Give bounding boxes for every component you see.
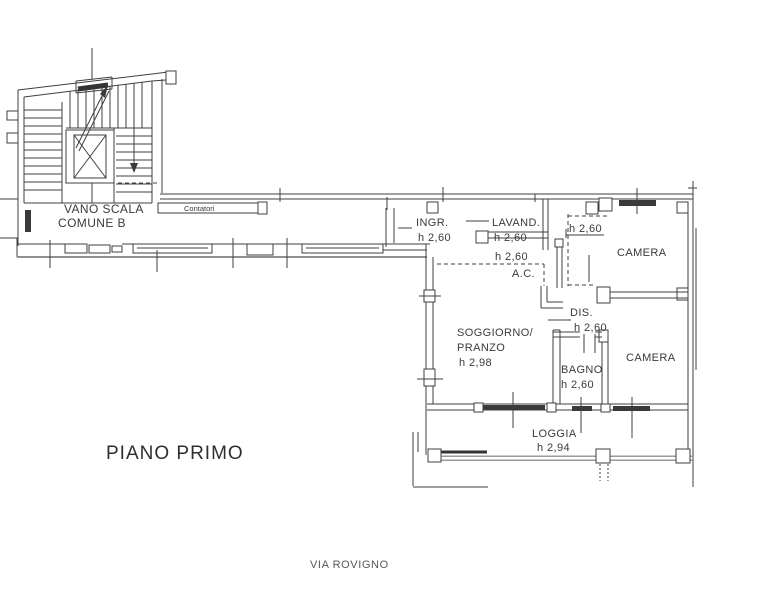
room-label-disimpegno: DIS.: [570, 307, 593, 319]
room-label-lavanderia: LAVAND.: [492, 217, 540, 229]
room-label-ingresso: INGR.: [416, 217, 449, 229]
loggia-railing: [413, 432, 694, 487]
room-label-bagno: BAGNO: [561, 364, 603, 376]
room-height-ingresso: h 2,60: [418, 232, 451, 244]
room-label-camera-nord: CAMERA: [617, 247, 667, 259]
room-height-loggia: h 2,94: [537, 442, 570, 454]
stairwell-door-mark: [25, 210, 31, 232]
room-label-soggiorno-line2: PRANZO: [457, 342, 505, 354]
floor-plan-page: VANO SCALA COMUNE B Contatori INGR. h 2,…: [0, 0, 768, 601]
room-height-vestibolo: h 2,60: [569, 223, 602, 235]
room-height-soggiorno: h 2,98: [459, 357, 492, 369]
floor-plan-canvas: VANO SCALA COMUNE B Contatori INGR. h 2,…: [0, 0, 768, 601]
room-label-camera-sud: CAMERA: [626, 352, 676, 364]
stairwell-label-line2: COMUNE B: [58, 216, 126, 230]
room-label-soggiorno-line1: SOGGIORNO/: [457, 327, 534, 339]
room-height-bagno: h 2,60: [561, 379, 594, 391]
stairwell-label-line1: VANO SCALA: [64, 202, 144, 216]
meters-label: Contatori: [184, 204, 215, 213]
street-label: VIA ROVIGNO: [310, 559, 389, 571]
room-label-loggia: LOGGIA: [532, 428, 577, 440]
room-height-armadio: h 2,60: [495, 251, 528, 263]
room-label-armadio: A.C.: [512, 268, 535, 280]
room-height-disimpegno: h 2,60: [574, 322, 607, 334]
plan-title: PIANO PRIMO: [106, 443, 244, 464]
elevator-shaft: [66, 130, 114, 183]
bagno-window: [572, 406, 592, 411]
room-height-lavanderia: h 2,60: [494, 232, 527, 244]
